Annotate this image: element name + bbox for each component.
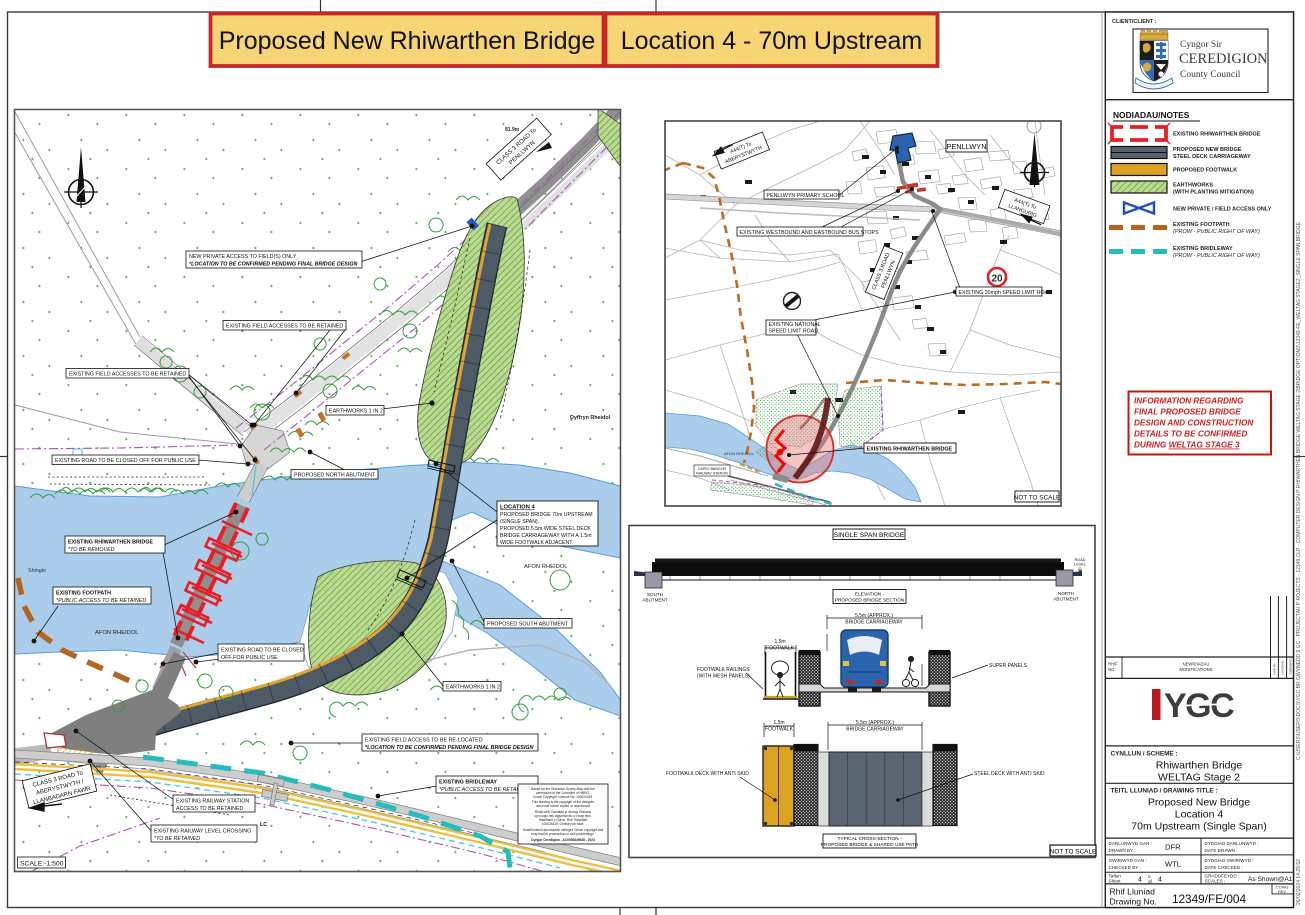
svg-text:LEVEL: LEVEL	[1074, 563, 1086, 567]
svg-text:Crown Copyright. Licence No. 1: Crown Copyright. Licence No. 100024419.	[533, 795, 593, 799]
svg-text:EXISTING BRIDLEWAY: EXISTING BRIDLEWAY	[439, 780, 497, 786]
svg-text:DRAWN BY :: DRAWN BY :	[1109, 848, 1136, 853]
svg-text:EXISTING BRIDLEWAY: EXISTING BRIDLEWAY	[1173, 246, 1233, 252]
svg-text:ABUTMENT: ABUTMENT	[1053, 597, 1078, 602]
svg-text:4: 4	[1158, 877, 1162, 884]
svg-text:PROPOSED BRIDGE & SHARED USE P: PROPOSED BRIDGE & SHARED USE PATH	[821, 842, 919, 848]
svg-text:As Shown@A1: As Shown@A1	[1248, 876, 1293, 883]
svg-text:Location 4 - 70m Upstream: Location 4 - 70m Upstream	[621, 27, 923, 55]
svg-text:INFORMATION REGARDING: INFORMATION REGARDING	[1134, 397, 1244, 406]
svg-text:BRIDGE CARRIAGEWAY WITH A 1.5m: BRIDGE CARRIAGEWAY WITH A 1.5m	[500, 533, 592, 539]
svg-text:NO: NO	[1108, 667, 1115, 672]
svg-text:C:\USERS\USERS\DOCS\YGC.BR GWY: C:\USERS\USERS\DOCS\YGC.BR GWYNEDD 9 GC …	[1296, 221, 1302, 760]
svg-text:CHECKED BY :: CHECKED BY :	[1109, 865, 1141, 870]
svg-text:PROPOSED NORTH ABUTMENT: PROPOSED NORTH ABUTMENT	[294, 473, 376, 479]
svg-text:PROPOSED FOOTWALK: PROPOSED FOOTWALK	[1173, 168, 1237, 174]
svg-text:DYDDIAD DARLUNWYD :: DYDDIAD DARLUNWYD :	[1205, 841, 1259, 846]
svg-text:EXISTING RAILWAY LEVEL CROSSIN: EXISTING RAILWAY LEVEL CROSSING	[154, 829, 251, 835]
svg-text:DETAILS TO BE CONFIRMED: DETAILS TO BE CONFIRMED	[1134, 430, 1247, 439]
svg-text:SOUTH: SOUTH	[647, 592, 663, 597]
svg-text:and must not be copied or repr: and must not be copied or reproduced	[536, 804, 590, 808]
svg-text:EXISTING FOOTPATH: EXISTING FOOTPATH	[1173, 222, 1230, 228]
svg-text:TEITL LLUNIAD / DRAWING TITLE: TEITL LLUNIAD / DRAWING TITLE :	[1111, 788, 1218, 795]
svg-text:NOT TO SCALE: NOT TO SCALE	[1014, 495, 1061, 502]
svg-text:DARLUNWYD GAN :: DARLUNWYD GAN :	[1109, 841, 1152, 846]
svg-text:C'DWG: C'DWG	[1276, 886, 1289, 890]
svg-text:DYDDIAD GWIRIWYD :: DYDDIAD GWIRIWYD :	[1205, 858, 1254, 863]
svg-text:12349/FE/004: 12349/FE/004	[1172, 892, 1247, 906]
svg-text:AFON RHEIDOL: AFON RHEIDOL	[95, 630, 139, 636]
svg-text:EXISTING RHIWARTHEN BRIDGE: EXISTING RHIWARTHEN BRIDGE	[1173, 132, 1261, 138]
svg-text:PROPOSED BRIDGE SECTION: PROPOSED BRIDGE SECTION	[835, 598, 905, 604]
svg-text:NODIADAU/NOTES: NODIADAU/NOTES	[1113, 110, 1190, 120]
svg-text:PROPOSED BRIDGE 70m UPSTREAM: PROPOSED BRIDGE 70m UPSTREAM	[500, 512, 593, 518]
svg-text:TYPICAL CROSS-SECTION -: TYPICAL CROSS-SECTION -	[837, 836, 901, 842]
svg-text:EXISTING ROAD TO BE CLOSED OFF: EXISTING ROAD TO BE CLOSED OFF FOR PUBLI…	[55, 458, 196, 464]
svg-text:GAN BY: GAN BY	[1273, 663, 1277, 674]
svg-text:EARTHWORKS 1 IN 2: EARTHWORKS 1 IN 2	[329, 409, 383, 415]
svg-text:EXISTING FIELD ACCESSES TO BE: EXISTING FIELD ACCESSES TO BE RETAINED	[69, 372, 186, 378]
svg-text:SCALES :: SCALES :	[1205, 879, 1226, 884]
svg-text:PROPOSED NEW BRIDGE: PROPOSED NEW BRIDGE	[1173, 147, 1242, 153]
svg-text:BRIDGE CARRIAGEWAY: BRIDGE CARRIAGEWAY	[845, 620, 903, 626]
svg-text:LOCATION 4: LOCATION 4	[500, 505, 535, 511]
svg-text:EXISTING NATIONAL: EXISTING NATIONAL	[769, 322, 821, 328]
svg-text:Proposed New Bridge: Proposed New Bridge	[1148, 797, 1250, 809]
svg-text:WTL: WTL	[1165, 860, 1181, 869]
svg-text:Proposed New Rhiwarthen Bridge: Proposed New Rhiwarthen Bridge	[219, 27, 596, 55]
svg-text:EXISTING FIELD ACCESS TO BE RE: EXISTING FIELD ACCESS TO BE RE-LOCATED	[365, 738, 483, 744]
svg-text:26/02/2024 14:29:52: 26/02/2024 14:29:52	[1296, 859, 1302, 905]
svg-text:WELTAG Stage 2: WELTAG Stage 2	[1158, 772, 1240, 784]
svg-text:REV: REV	[1278, 890, 1286, 894]
svg-text:DFR: DFR	[1165, 843, 1181, 852]
svg-text:ROAD: ROAD	[1075, 558, 1086, 562]
svg-text:FOOTWALK: FOOTWALK	[765, 727, 794, 733]
svg-text:Drawing No.: Drawing No.	[1110, 897, 1157, 907]
svg-text:DATE DRAWN :: DATE DRAWN :	[1205, 848, 1238, 853]
svg-text:AFON RHEIDOL: AFON RHEIDOL	[724, 451, 755, 456]
svg-text:FOOTWALK DECK WITH ANTI SKID: FOOTWALK DECK WITH ANTI SKID	[666, 771, 749, 777]
svg-text:(SINGLE SPAN).: (SINGLE SPAN).	[500, 519, 539, 525]
svg-text:SCALE:-1:500: SCALE:-1:500	[20, 861, 64, 868]
svg-text:EXISTING RHIWARTHEN BRIDGE: EXISTING RHIWARTHEN BRIDGE	[867, 447, 953, 453]
svg-text:Location 4: Location 4	[1175, 809, 1224, 821]
svg-text:5.5m (APPROX.): 5.5m (APPROX.)	[855, 613, 893, 619]
svg-text:RAILWAY STATION: RAILWAY STATION	[696, 472, 728, 476]
svg-text:EXISTING 20mph SPEED LIMIT ROA: EXISTING 20mph SPEED LIMIT ROAD	[959, 290, 1053, 296]
svg-text:DESIGN AND CONSTRUCTION: DESIGN AND CONSTRUCTION	[1134, 419, 1254, 428]
svg-text:Sheet: Sheet	[1109, 879, 1122, 884]
svg-text:EXISTING RAILWAY STATION: EXISTING RAILWAY STATION	[176, 799, 249, 805]
svg-text:DATE CHECKED :: DATE CHECKED :	[1205, 865, 1243, 870]
svg-text:(WITH PLANTING MITIGATION): (WITH PLANTING MITIGATION)	[1173, 190, 1254, 196]
svg-text:(WITH MESH PANELS): (WITH MESH PANELS)	[697, 674, 750, 680]
svg-text:4: 4	[1138, 877, 1142, 884]
svg-text:EXISTING WESTBOUND AND EASTBOU: EXISTING WESTBOUND AND EASTBOUND BUS STO…	[740, 230, 880, 236]
svg-text:1.5m: 1.5m	[774, 639, 785, 645]
svg-text:YGC: YGC	[1164, 687, 1234, 725]
svg-text:CAPEL BANGOR: CAPEL BANGOR	[698, 467, 727, 471]
svg-text:*PUBLIC ACCESS TO BE RETAINED: *PUBLIC ACCESS TO BE RETAINED	[56, 598, 146, 604]
svg-text:DURING WELTAG STAGE 3: DURING WELTAG STAGE 3	[1134, 441, 1240, 450]
svg-text:STEEL DECK WITH ANTI SKID: STEEL DECK WITH ANTI SKID	[974, 771, 1045, 777]
svg-text:MODIFICATIONS: MODIFICATIONS	[1180, 667, 1213, 672]
svg-text:EXISTING RHIWARTHEN BRIDGE: EXISTING RHIWARTHEN BRIDGE	[68, 540, 153, 546]
svg-text:OFF FOR PUBLIC USE: OFF FOR PUBLIC USE	[221, 655, 278, 661]
svg-text:*LOCATION TO BE CONFIRMED PEND: *LOCATION TO BE CONFIRMED PENDING FINAL …	[365, 745, 533, 751]
svg-text:SPEED LIMIT ROAD: SPEED LIMIT ROAD	[769, 329, 819, 335]
svg-text:WIDE FOOTWALK ADJACENT.: WIDE FOOTWALK ADJACENT.	[500, 540, 573, 546]
svg-text:SINGLE SPAN BRIDGE: SINGLE SPAN BRIDGE	[834, 532, 905, 539]
svg-text:FOOTWALK RAILINGS: FOOTWALK RAILINGS	[697, 667, 750, 673]
svg-text:NEW PRIVATE ACCESS TO FIELD(S): NEW PRIVATE ACCESS TO FIELD(S) ONLY	[189, 254, 297, 260]
svg-text:PROPOSED 5.5m WIDE STEEL DECK: PROPOSED 5.5m WIDE STEEL DECK	[500, 526, 591, 532]
svg-text:LC: LC	[260, 822, 267, 828]
svg-text:(PROW - PUBLIC RIGHT OF WAY): (PROW - PUBLIC RIGHT OF WAY)	[1173, 229, 1260, 235]
svg-text:EXISTING ROAD TO BE CLOSED: EXISTING ROAD TO BE CLOSED	[221, 648, 304, 654]
svg-text:SUPER PANELS: SUPER PANELS	[989, 663, 1028, 669]
svg-text:NEW PRIVATE / FIELD ACCESS ONL: NEW PRIVATE / FIELD ACCESS ONLY	[1173, 207, 1272, 213]
svg-text:CLIENT/CLIENT :: CLIENT/CLIENT :	[1112, 19, 1157, 25]
svg-text:FINAL PROPOSED BRIDGE: FINAL PROPOSED BRIDGE	[1134, 408, 1241, 417]
svg-text:EXISTING FOOTPATH: EXISTING FOOTPATH	[56, 591, 111, 597]
svg-text:Dyffryn Rheidol: Dyffryn Rheidol	[570, 415, 611, 421]
svg-text:PROPOSED SOUTH ABUTMENT: PROPOSED SOUTH ABUTMENT	[487, 622, 569, 628]
svg-text:Shingle: Shingle	[28, 568, 46, 574]
svg-text:81.9m: 81.9m	[505, 127, 520, 133]
svg-text:County Council: County Council	[1180, 70, 1241, 80]
svg-text:100024419. Cedwir pob hawl.: 100024419. Cedwir pob hawl.	[542, 822, 584, 826]
svg-text:1.5m: 1.5m	[773, 720, 784, 726]
svg-text:EARTHWORKS: EARTHWORKS	[1173, 183, 1213, 189]
svg-text:GWIRIWYD: GWIRIWYD	[1289, 658, 1293, 675]
svg-text:70m Upstream (Single Span): 70m Upstream (Single Span)	[1131, 821, 1266, 833]
svg-text:*TO BE REMOVED: *TO BE REMOVED	[68, 547, 115, 553]
svg-text:NORTH: NORTH	[1058, 591, 1074, 596]
svg-text:CYNLLUN / SCHEME :: CYNLLUN / SCHEME :	[1111, 751, 1178, 758]
svg-text:Rhif Lluniad: Rhif Lluniad	[1110, 887, 1156, 897]
svg-text:PENLLWYN: PENLLWYN	[946, 142, 986, 151]
svg-text:5.5m (APPROX.): 5.5m (APPROX.)	[856, 720, 894, 726]
svg-text:20: 20	[991, 274, 1003, 285]
svg-text:*LOCATION TO BE CONFIRMED PEND: *LOCATION TO BE CONFIRMED PENDING FINAL …	[189, 262, 357, 268]
svg-text:NEWIDIADAU: NEWIDIADAU	[1183, 662, 1210, 667]
svg-text:CEREDIGION: CEREDIGION	[1179, 51, 1268, 67]
svg-text:*PUBLIC ACCESS TO BE RETAINED: *PUBLIC ACCESS TO BE RETAINED	[439, 787, 529, 793]
svg-text:GWIRIWYD GAN :: GWIRIWYD GAN :	[1109, 858, 1147, 863]
svg-text:STEEL DECK CARRIAGEWAY: STEEL DECK CARRIAGEWAY	[1173, 154, 1251, 160]
svg-text:(PROW - PUBLIC RIGHT OF WAY): (PROW - PUBLIC RIGHT OF WAY)	[1173, 253, 1260, 259]
svg-text:ACCESS TO BE RETAINED: ACCESS TO BE RETAINED	[176, 806, 244, 812]
svg-text:FOOTWALK: FOOTWALK	[766, 646, 795, 652]
svg-text:RHIF: RHIF	[1108, 662, 1118, 667]
svg-text:DYDDIAD: DYDDIAD	[1281, 660, 1285, 674]
svg-text:AFON RHEIDOL: AFON RHEIDOL	[524, 564, 568, 570]
svg-text:PENLLWYN PRIMARY SCHOOL: PENLLWYN PRIMARY SCHOOL	[767, 193, 845, 199]
svg-text:EXISTING FIELD ACCESSES TO BE: EXISTING FIELD ACCESSES TO BE RETAINED	[226, 324, 343, 330]
svg-text:ELEVATION -: ELEVATION -	[855, 592, 885, 598]
svg-text:Cyngor Ceredigion - AC00008496: Cyngor Ceredigion - AC0000849648 - 2024	[531, 838, 595, 842]
svg-text:Rhiwarthen Bridge: Rhiwarthen Bridge	[1156, 760, 1243, 772]
svg-text:EARTHWORKS 1 IN 2: EARTHWORKS 1 IN 2	[446, 685, 500, 691]
svg-text:may lead to prosecution or civ: may lead to prosecution or civil proceed…	[532, 832, 595, 836]
svg-text:Cyngor Sir: Cyngor Sir	[1180, 40, 1223, 50]
svg-text:NOT TO SCALE: NOT TO SCALE	[1050, 849, 1097, 856]
svg-text:BRIDGE CARRIAGEWAY: BRIDGE CARRIAGEWAY	[846, 727, 904, 733]
svg-text:ABUTMENT: ABUTMENT	[642, 598, 667, 603]
svg-text:*TO BE RETAINED: *TO BE RETAINED	[154, 836, 200, 842]
